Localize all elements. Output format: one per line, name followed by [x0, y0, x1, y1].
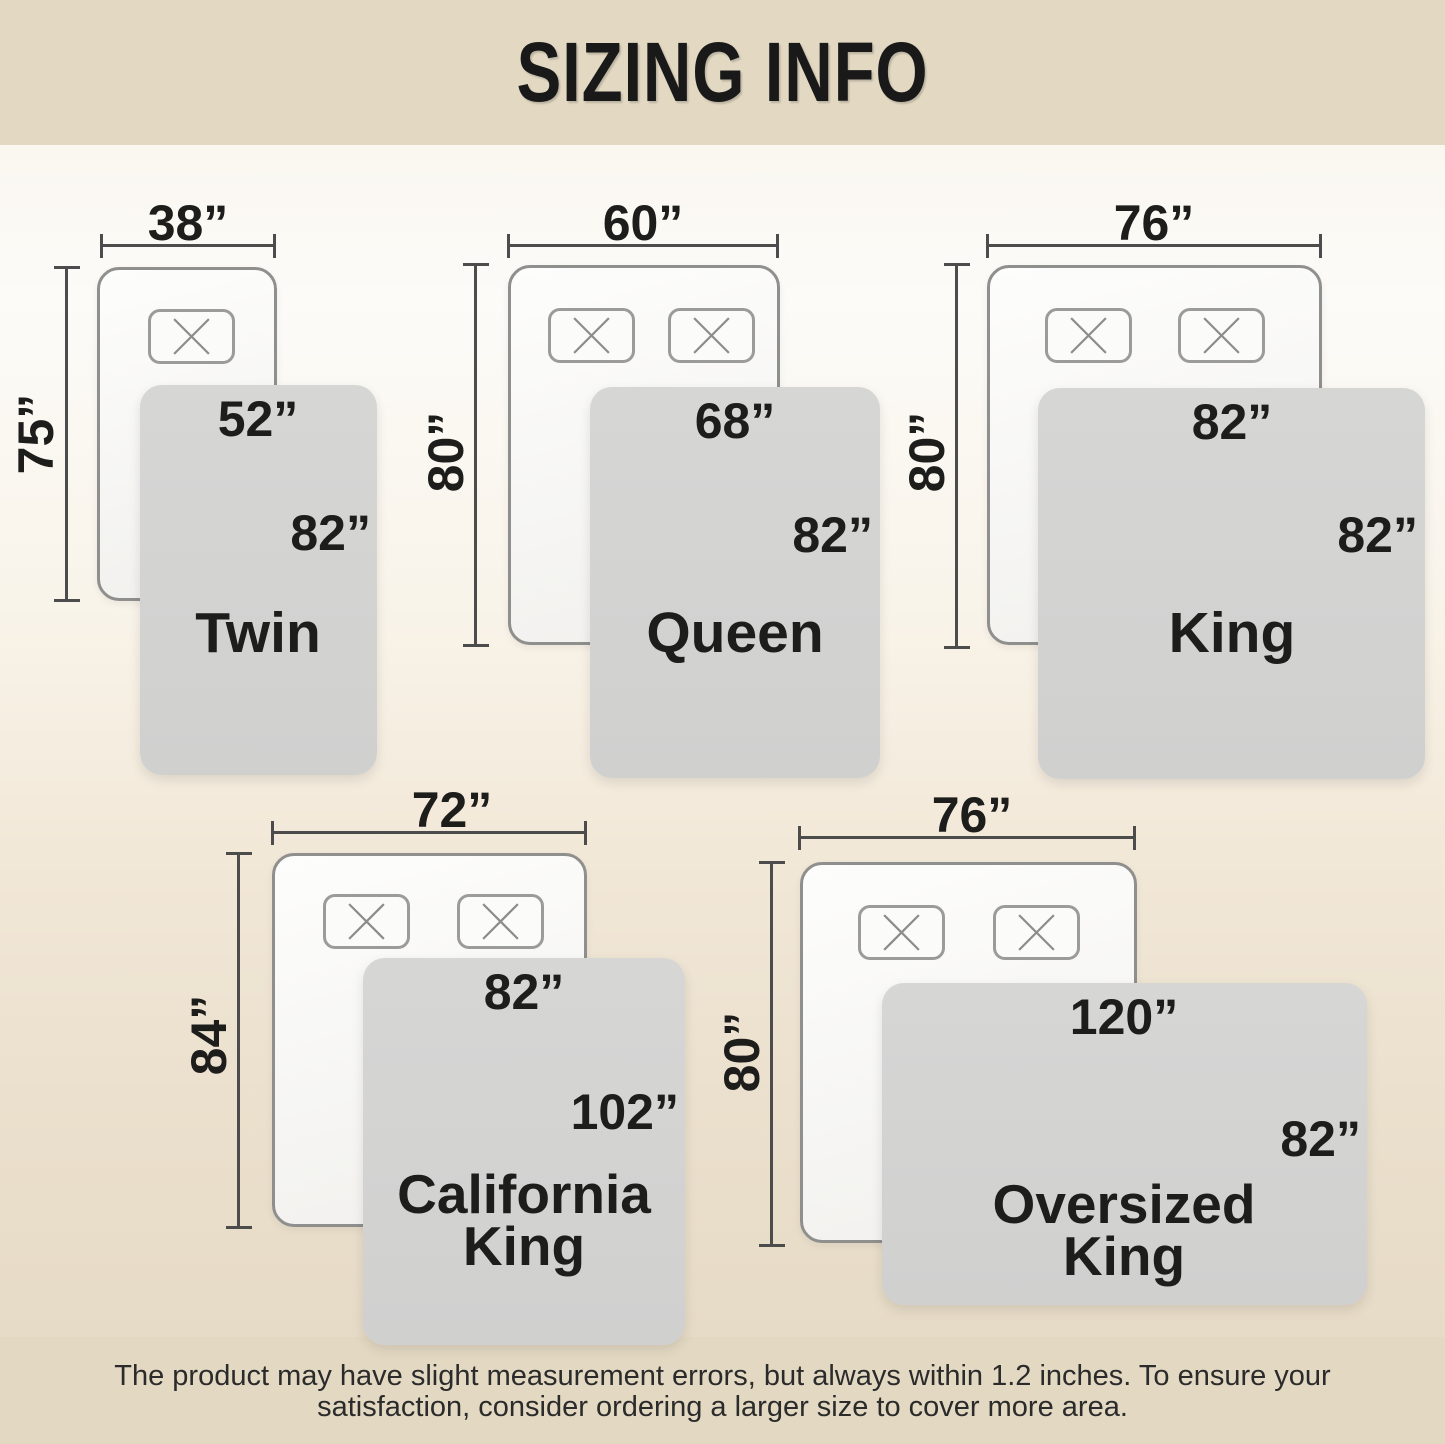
- blanket-height-label: 82”: [792, 506, 873, 564]
- pillow: [323, 894, 410, 949]
- mattress-height-label: 75”: [7, 394, 65, 475]
- blanket-height-label: 82”: [1280, 1110, 1361, 1168]
- mattress-width-label: 60”: [603, 194, 684, 252]
- pillow-x-icon: [861, 908, 942, 957]
- header-band: SIZING INFO: [0, 0, 1445, 145]
- bed-name-line: King: [993, 1230, 1256, 1282]
- dimension-tick: [54, 599, 80, 602]
- pillow: [457, 894, 544, 949]
- pillow: [1045, 308, 1132, 363]
- pillow: [1178, 308, 1265, 363]
- dimension-tick: [1133, 826, 1136, 850]
- pillow-x-icon: [326, 897, 407, 946]
- pillow-x-icon: [1181, 311, 1262, 360]
- mattress-width-label: 76”: [932, 786, 1013, 844]
- blanket-width-label: 52”: [218, 390, 299, 448]
- bed-name-line: Oversized: [993, 1178, 1256, 1230]
- blanket-height-label: 82”: [290, 504, 371, 562]
- footer-disclaimer-line2: satisfaction, consider ordering a larger…: [0, 1392, 1445, 1423]
- mattress-width-label: 38”: [148, 194, 229, 252]
- footer-disclaimer: The product may have slight measurement …: [0, 1337, 1445, 1423]
- pillow: [548, 308, 635, 363]
- pillow: [858, 905, 945, 960]
- blanket-width-label: 82”: [484, 963, 565, 1021]
- dimension-tick: [226, 1226, 252, 1229]
- pillow-x-icon: [1048, 311, 1129, 360]
- bed-name-label: Queen: [646, 600, 823, 666]
- footer-disclaimer-line1: The product may have slight measurement …: [0, 1361, 1445, 1392]
- blanket-width-label: 120”: [1070, 988, 1178, 1046]
- dimension-tick: [759, 1244, 785, 1247]
- sizing-infographic: SIZING INFO 38” 75” 52” 82” Twin: [0, 0, 1445, 1444]
- pillow-x-icon: [460, 897, 541, 946]
- mattress-height-label: 80”: [898, 412, 956, 493]
- dimension-tick: [776, 234, 779, 258]
- dimension-tick: [1319, 234, 1322, 258]
- blanket-width-label: 82”: [1192, 393, 1273, 451]
- dimension-tick: [273, 234, 276, 258]
- pillow: [148, 309, 235, 364]
- mattress-height-label: 80”: [417, 412, 475, 493]
- mattress-height-label: 80”: [713, 1012, 771, 1093]
- blanket-width-label: 68”: [695, 392, 776, 450]
- dimension-tick: [463, 644, 489, 647]
- blanket-height-label: 82”: [1337, 506, 1418, 564]
- mattress-height-label: 84”: [180, 995, 238, 1076]
- blanket-height-label: 102”: [571, 1083, 679, 1141]
- mattress-width-label: 76”: [1114, 194, 1195, 252]
- dimension-line: [65, 266, 68, 602]
- bed-name-line: California: [397, 1168, 651, 1220]
- pillow-x-icon: [551, 311, 632, 360]
- bed-name-label: Twin: [195, 600, 321, 666]
- footer-band: The product may have slight measurement …: [0, 1337, 1445, 1444]
- pillow: [668, 308, 755, 363]
- bed-name-line: King: [397, 1220, 651, 1272]
- bed-name-label: Oversized King: [993, 1178, 1256, 1282]
- pillow-x-icon: [151, 312, 232, 361]
- bed-name-label: King: [1169, 600, 1296, 666]
- page-title: SIZING INFO: [517, 0, 929, 145]
- pillow: [993, 905, 1080, 960]
- mattress-width-label: 72”: [412, 781, 493, 839]
- bed-name-label: California King: [397, 1168, 651, 1272]
- pillow-x-icon: [996, 908, 1077, 957]
- pillow-x-icon: [671, 311, 752, 360]
- dimension-tick: [944, 646, 970, 649]
- dimension-tick: [584, 821, 587, 845]
